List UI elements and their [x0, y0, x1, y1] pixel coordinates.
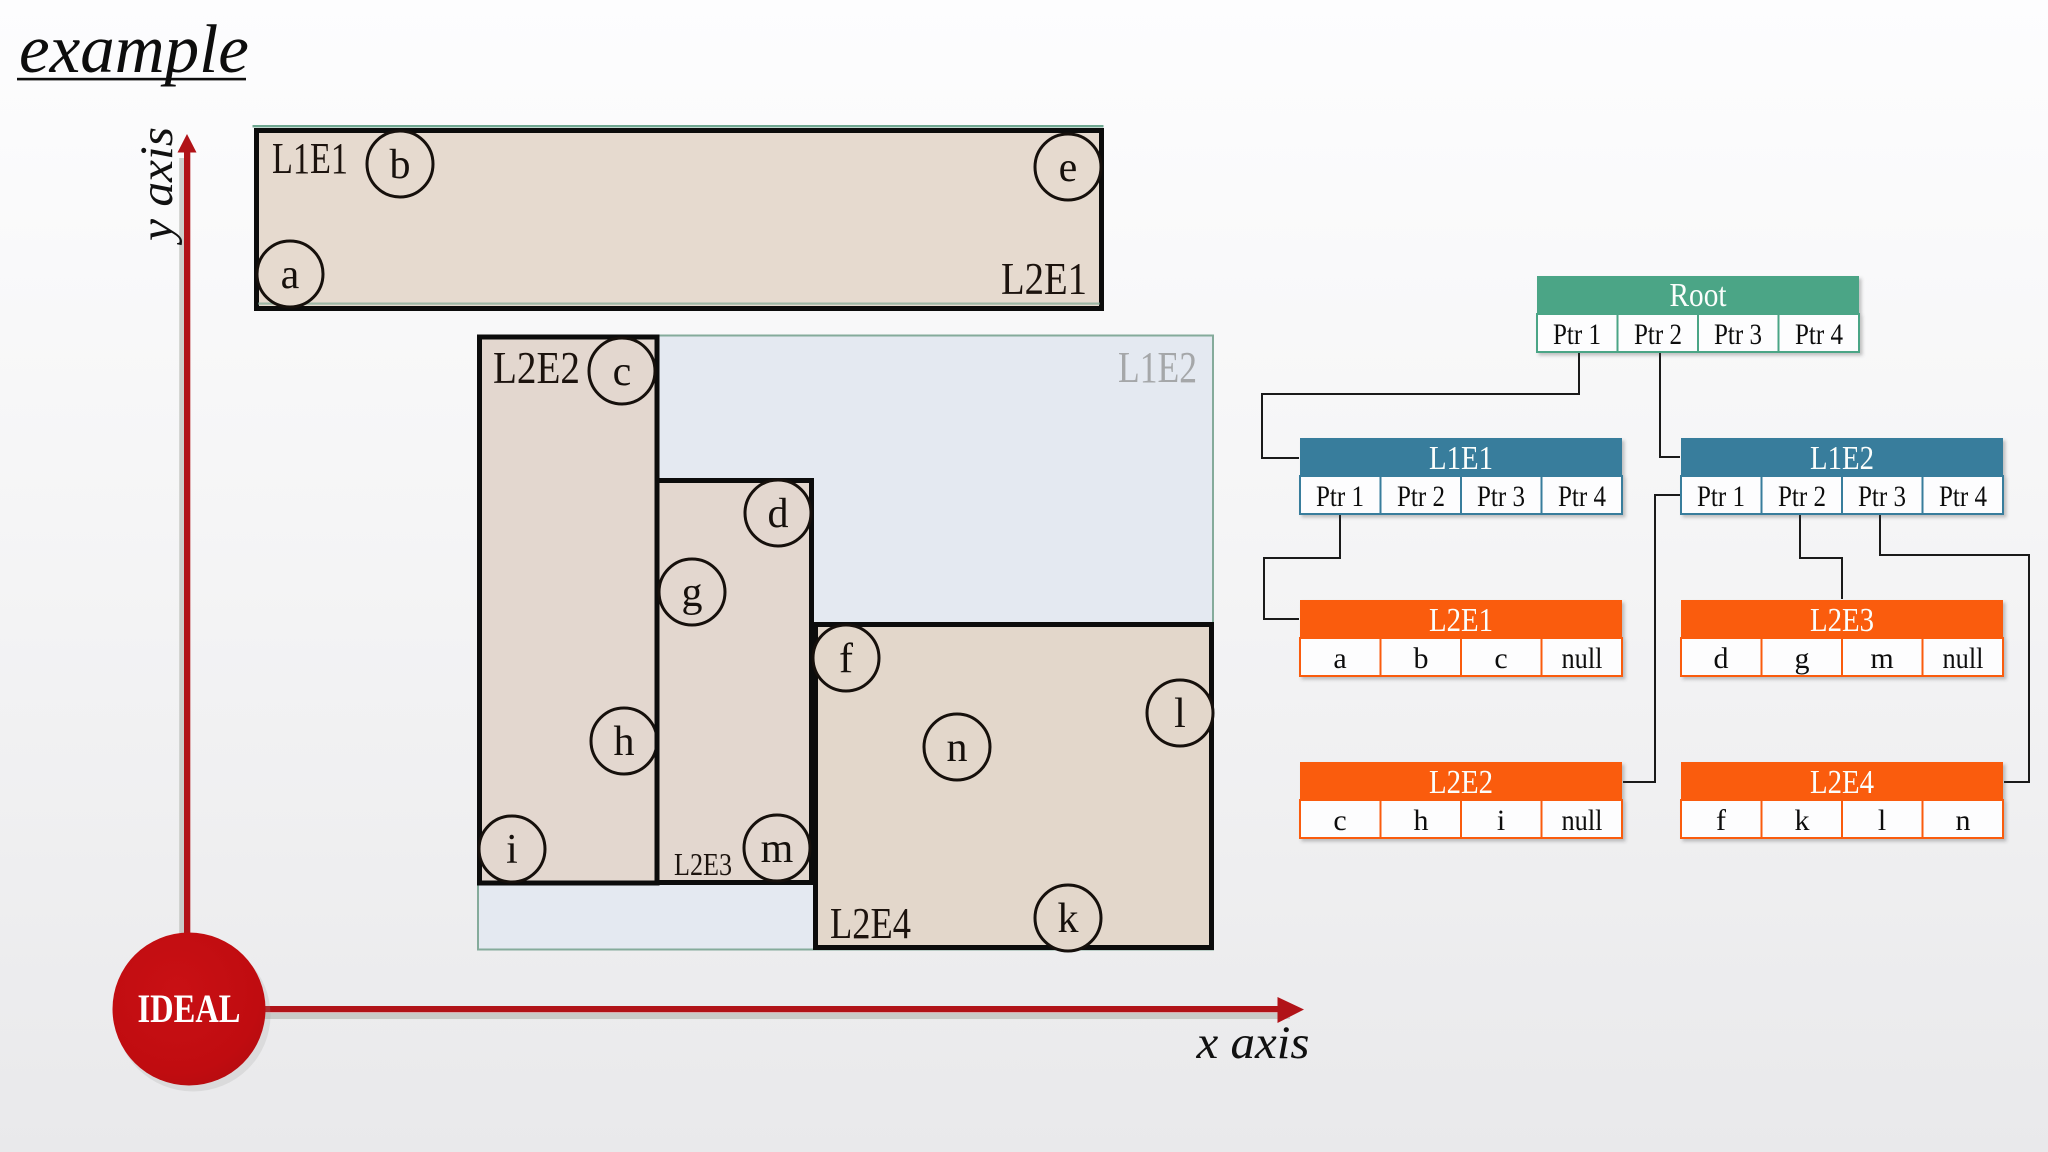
svg-text:y axis: y axis — [131, 127, 183, 245]
svg-text:m: m — [761, 826, 794, 872]
svg-text:n: n — [947, 725, 968, 771]
svg-text:L1E1: L1E1 — [1429, 440, 1493, 477]
svg-text:h: h — [1414, 804, 1429, 837]
svg-text:a: a — [281, 252, 300, 298]
svg-text:d: d — [768, 491, 789, 537]
svg-text:IDEAL: IDEAL — [138, 986, 241, 1031]
svg-text:Ptr 1: Ptr 1 — [1316, 480, 1364, 513]
svg-text:null: null — [1562, 804, 1603, 837]
svg-text:L1E2: L1E2 — [1810, 440, 1874, 477]
svg-text:L2E2: L2E2 — [1429, 764, 1493, 801]
svg-text:i: i — [506, 827, 518, 873]
svg-text:Ptr 3: Ptr 3 — [1858, 480, 1906, 513]
svg-text:Ptr 4: Ptr 4 — [1558, 480, 1606, 513]
svg-text:g: g — [1795, 642, 1810, 675]
svg-text:Ptr 1: Ptr 1 — [1697, 480, 1745, 513]
svg-text:d: d — [1714, 642, 1729, 675]
svg-text:L2E1: L2E1 — [1001, 254, 1087, 304]
svg-text:L1E2: L1E2 — [1118, 343, 1197, 392]
svg-text:Root: Root — [1670, 277, 1727, 314]
svg-text:b: b — [1414, 642, 1429, 675]
svg-text:h: h — [614, 719, 635, 765]
svg-text:example: example — [19, 11, 249, 87]
svg-text:L2E3: L2E3 — [674, 846, 732, 882]
svg-text:g: g — [682, 570, 703, 616]
svg-text:n: n — [1956, 804, 1971, 837]
svg-text:a: a — [1333, 642, 1346, 675]
svg-text:m: m — [1870, 642, 1893, 675]
svg-text:Ptr 4: Ptr 4 — [1795, 318, 1843, 351]
svg-text:k: k — [1058, 896, 1079, 942]
svg-text:f: f — [839, 636, 853, 682]
svg-text:e: e — [1059, 145, 1078, 191]
svg-text:L2E2: L2E2 — [493, 342, 580, 393]
svg-text:L2E4: L2E4 — [1810, 764, 1874, 801]
svg-text:Ptr 1: Ptr 1 — [1553, 318, 1601, 351]
svg-text:k: k — [1795, 804, 1810, 837]
svg-text:Ptr 2: Ptr 2 — [1634, 318, 1682, 351]
svg-text:c: c — [1333, 804, 1346, 837]
svg-text:L2E1: L2E1 — [1429, 602, 1493, 639]
svg-text:L2E4: L2E4 — [830, 899, 911, 948]
svg-text:c: c — [1494, 642, 1507, 675]
svg-text:null: null — [1943, 642, 1984, 675]
svg-text:L1E1: L1E1 — [272, 134, 348, 183]
svg-text:c: c — [613, 349, 632, 395]
svg-text:null: null — [1562, 642, 1603, 675]
svg-text:b: b — [390, 142, 411, 188]
svg-text:l: l — [1878, 804, 1886, 837]
svg-text:x axis: x axis — [1195, 1017, 1309, 1069]
svg-text:Ptr 2: Ptr 2 — [1778, 480, 1826, 513]
svg-text:Ptr 2: Ptr 2 — [1397, 480, 1445, 513]
svg-text:i: i — [1497, 804, 1505, 837]
svg-text:f: f — [1716, 804, 1726, 837]
svg-text:Ptr 3: Ptr 3 — [1714, 318, 1762, 351]
svg-text:l: l — [1174, 691, 1186, 737]
svg-text:Ptr 4: Ptr 4 — [1939, 480, 1987, 513]
svg-text:L2E3: L2E3 — [1810, 602, 1874, 639]
svg-text:Ptr 3: Ptr 3 — [1477, 480, 1525, 513]
